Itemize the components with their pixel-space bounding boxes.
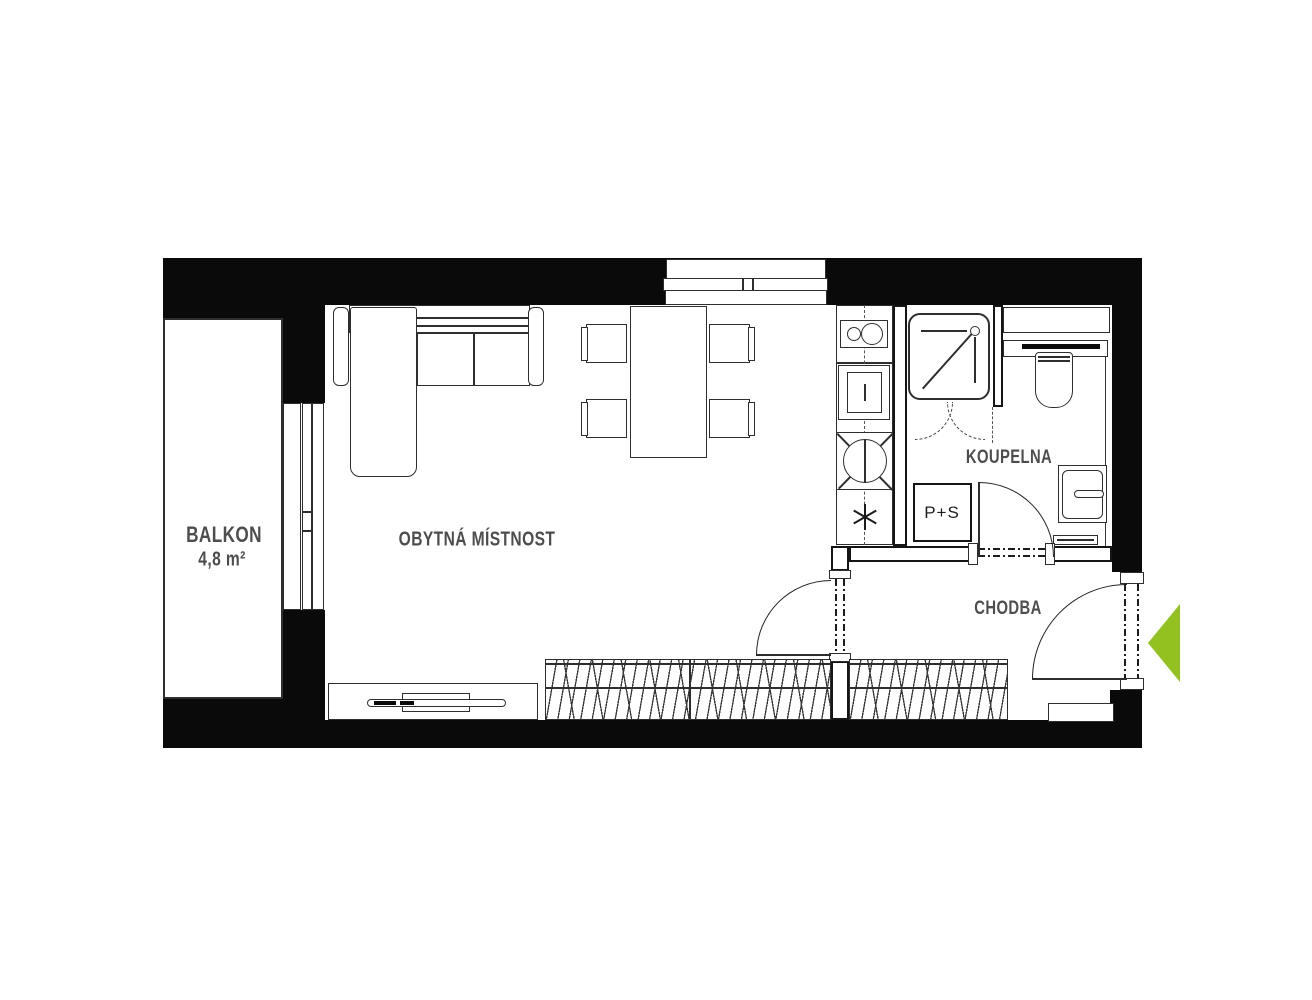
living-door-swing-arc	[756, 580, 831, 655]
toilet-cistern-bar	[1022, 344, 1100, 349]
wall-top-left-block	[163, 258, 325, 318]
balcony-floor	[163, 318, 283, 699]
washbasin-tap	[1074, 490, 1104, 498]
window-outer-sill	[666, 259, 826, 279]
sofa-chaise	[350, 307, 417, 477]
bathroom-door-post-left	[968, 543, 978, 565]
kitchen-sink-bowl-small	[847, 327, 861, 341]
wall-kitchen-bathroom	[893, 305, 907, 546]
wall-living-hallway-top	[831, 546, 849, 571]
chair-top-left-backrest	[581, 327, 588, 361]
balcony-door-mullion	[302, 403, 312, 610]
toilet-seat-line-1	[1038, 356, 1070, 358]
chair-top-left-seat	[586, 324, 627, 363]
chair-bottom-left-seat	[586, 399, 627, 438]
cooktop-center-line	[864, 440, 866, 483]
balcony-label: BALKON	[186, 522, 262, 548]
chair-bottom-left-backrest	[581, 402, 588, 436]
wall-shower-stub	[993, 305, 1003, 407]
balcony-door-divider-1	[302, 511, 312, 513]
towel-radiator-line	[1057, 539, 1094, 541]
shower-door-arc-right	[947, 402, 985, 440]
chair-bottom-right-backrest	[748, 402, 755, 436]
shower-detail-line-h	[921, 330, 967, 332]
balcony-door-pane-left	[283, 403, 301, 610]
shower-detail-line-v	[974, 337, 976, 383]
balcony-door-divider-2	[302, 530, 312, 532]
balcony-door-pane-right	[312, 403, 324, 610]
entrance-door-swing-arc	[1032, 584, 1127, 679]
living-door-post-top	[829, 570, 851, 579]
chair-bottom-right-seat	[709, 399, 750, 438]
kitchen-sink-bowl-large	[861, 323, 883, 345]
toilet-cistern-shelf	[1003, 307, 1110, 333]
entrance-door-post-bottom	[1120, 678, 1144, 690]
wardrobe-mid-line	[546, 687, 830, 689]
wall-bathroom-bottom-right	[1053, 546, 1112, 562]
entrance-threshold-line-2	[1137, 584, 1139, 678]
bathroom-door-swing-arc	[979, 482, 1054, 557]
tv-screen-segment-1	[374, 701, 396, 705]
window-inner-sill	[665, 290, 827, 305]
entrance-arrow-icon	[1148, 604, 1180, 682]
wardrobe-hallway	[849, 659, 1008, 720]
window-mullion-2	[752, 278, 754, 291]
hallway-label: CHODBA	[974, 598, 1041, 620]
living-door-threshold-line-1	[835, 579, 837, 653]
living-room-label: OBYTNÁ MÍSTNOST	[399, 529, 556, 552]
chair-top-right-backrest	[748, 327, 755, 361]
wall-bottom	[283, 720, 1142, 748]
sofa-armrest-right	[528, 307, 544, 386]
entrance-door-post-top	[1120, 572, 1144, 584]
shower-head-circle	[970, 326, 980, 336]
floor-plan: P+S BALKON 4,8 m² OBYTNÁ MÍSTNOST KOUPEL…	[0, 0, 1312, 1000]
dining-table	[630, 306, 707, 458]
wall-right-lower-block	[1110, 690, 1142, 722]
wardrobe-rail-line	[546, 663, 830, 665]
wardrobe-living-room	[545, 659, 831, 720]
boiler-asterisk-icon	[852, 504, 878, 530]
balcony-area-label: 4,8 m²	[198, 549, 245, 572]
washer-dryer-label: P+S	[924, 503, 960, 523]
living-door-threshold-line-2	[843, 579, 845, 653]
shower-glass-dashed-line	[992, 407, 993, 443]
wall-bathroom-bottom-left	[849, 546, 970, 562]
window-mullion-1	[742, 278, 744, 291]
toilet-seat-line-2	[1038, 360, 1070, 362]
wardrobe-mid-line	[850, 687, 1007, 689]
sofa-armrest-left	[333, 307, 349, 386]
wardrobe-divider	[689, 660, 691, 719]
tv-screen-segment-2	[400, 701, 414, 705]
sofa-seat-divider	[473, 333, 475, 386]
living-door-post-bottom	[829, 653, 851, 662]
wardrobe-rail-line	[850, 663, 1007, 665]
wall-right-upper	[1112, 258, 1142, 572]
oven-handle-line	[864, 384, 866, 401]
wall-balcony-partition-upper	[283, 318, 325, 403]
chair-top-right-seat	[709, 324, 750, 363]
wall-living-hallway-bottom	[831, 661, 849, 720]
bathroom-label: KOUPELNA	[966, 447, 1052, 469]
entry-step	[1048, 703, 1114, 722]
